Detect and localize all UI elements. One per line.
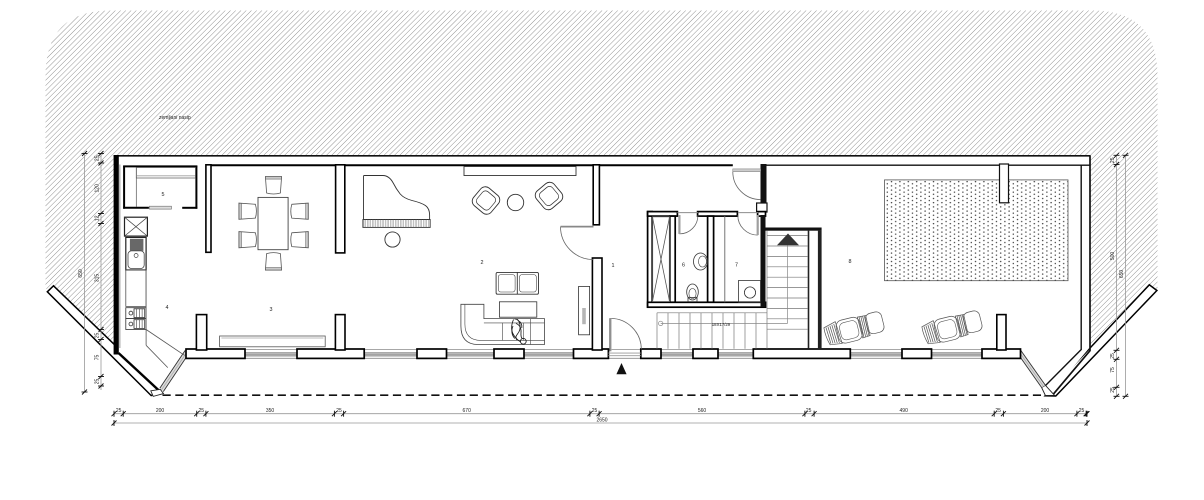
svg-text:25: 25 (116, 408, 122, 414)
svg-text:8: 8 (849, 259, 852, 265)
svg-text:120: 120 (95, 184, 101, 193)
svg-text:25: 25 (95, 379, 101, 385)
svg-text:2650: 2650 (596, 417, 607, 423)
svg-text:3: 3 (270, 307, 273, 313)
svg-text:75: 75 (1110, 367, 1116, 373)
svg-text:25: 25 (95, 333, 101, 339)
svg-text:2: 2 (481, 260, 484, 266)
svg-text:12: 12 (95, 215, 101, 221)
svg-text:25: 25 (336, 408, 342, 414)
svg-text:200: 200 (1041, 408, 1050, 414)
svg-text:4: 4 (166, 305, 169, 311)
svg-text:490: 490 (900, 408, 909, 414)
svg-text:6: 6 (682, 263, 685, 269)
svg-text:500: 500 (1110, 252, 1116, 261)
svg-text:5: 5 (162, 192, 165, 198)
svg-text:560: 560 (698, 408, 707, 414)
svg-text:670: 670 (463, 408, 472, 414)
svg-text:18X17/29: 18X17/29 (712, 322, 731, 327)
svg-text:315: 315 (95, 274, 101, 283)
svg-text:200: 200 (156, 408, 165, 414)
svg-text:25: 25 (95, 155, 101, 161)
svg-text:350: 350 (266, 408, 275, 414)
svg-text:650: 650 (1119, 270, 1125, 279)
svg-text:650: 650 (78, 269, 84, 278)
svg-text:25: 25 (806, 408, 812, 414)
svg-text:25: 25 (1110, 157, 1116, 163)
svg-text:75: 75 (95, 355, 101, 361)
svg-text:25: 25 (199, 408, 205, 414)
svg-text:25: 25 (1110, 387, 1116, 393)
svg-text:25: 25 (1110, 353, 1116, 359)
svg-text:zemljani nasip: zemljani nasip (159, 115, 191, 121)
svg-text:25: 25 (592, 408, 598, 414)
svg-text:7: 7 (735, 263, 738, 269)
svg-text:25: 25 (1079, 408, 1085, 414)
svg-text:1: 1 (612, 263, 615, 269)
svg-text:25: 25 (995, 408, 1001, 414)
